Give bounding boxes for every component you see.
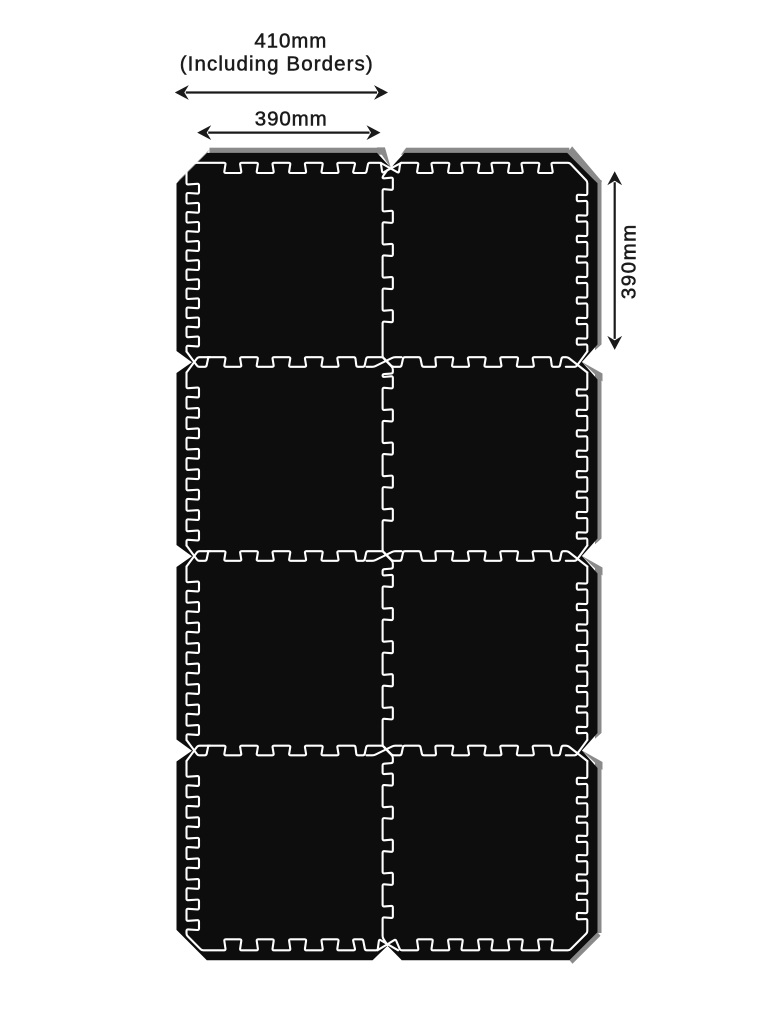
svg-text:(Including Borders): (Including Borders)	[180, 53, 374, 76]
svg-text:390mm: 390mm	[255, 107, 328, 130]
svg-text:410mm: 410mm	[254, 30, 327, 53]
svg-text:390mm: 390mm	[618, 223, 641, 299]
